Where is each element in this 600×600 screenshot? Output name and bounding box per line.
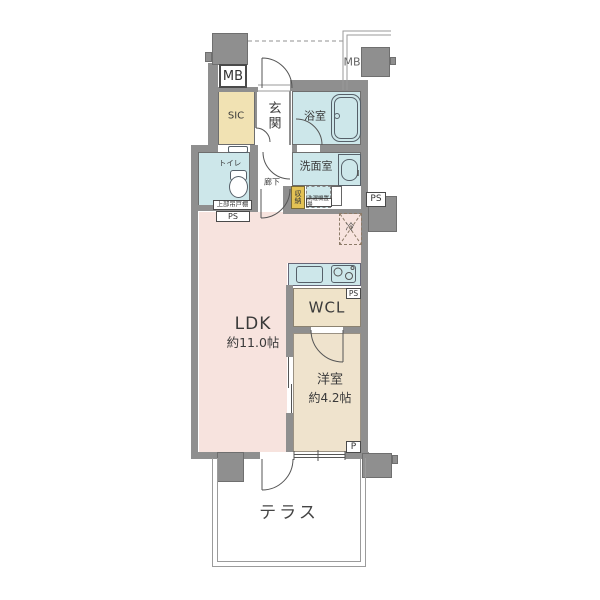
wall-left-lower [191,152,198,459]
entrance-label: 玄関 [265,101,280,131]
floorplan-canvas: MB PS PS PS P 上部吊戸棚 洗濯機置場 [0,0,600,600]
shaft-block-top-left [212,33,248,65]
wall-ldk-bedroom-upper [286,285,293,357]
wall-bath-washroom-l [292,145,297,152]
toilet-tank [228,146,248,153]
p-label: P [351,443,356,452]
wall-wcl-bottom-r [343,327,361,333]
sic-label: SIC [228,110,244,122]
bedroom-size-label: 約4.2帖 [308,392,351,406]
kitchen-stove [331,265,356,283]
bathroom-label: 浴室 [304,111,326,124]
room-ldk-main [199,263,287,452]
washer-label-box: 洗濯機置場 [306,198,332,207]
ps-toilet-label: PS [228,213,238,221]
shaft-block-top-right [361,47,390,77]
ps-kitchen-label: PS [349,290,358,298]
fridge-label: 冷 [345,223,354,233]
shaft-block-bottom-right [362,453,392,478]
shaft-tab-top-right [390,57,396,65]
mb-right-label: MB [343,57,360,70]
bedroom-name-label: 洋室 [317,374,343,389]
wall-wcl-bottom-l [293,327,311,333]
terrace-label: テラス [259,504,319,524]
kitchen-sink [296,266,323,283]
hallway-label: 廊下 [264,177,280,186]
ps-box-right: PS [366,192,386,207]
storage-label: 収納 [294,190,302,204]
wall-ldk-bedroom-lower [286,413,293,452]
wall-left-upper [208,63,218,152]
toilet-bowl [229,176,248,198]
ps-box-toilet: PS [216,211,250,222]
wall-entrance-bath [289,91,291,145]
entrance-door-arc [262,58,292,88]
wall-top-bath [290,80,368,91]
wcl-label: WCL [309,299,346,316]
vanity-sink [341,159,358,181]
upper-cabinet-label: 上部吊戸棚 [217,202,248,208]
upper-cabinet-box: 上部吊戸棚 [213,200,252,210]
shaft-tab-top-left [205,52,212,62]
washer-label: 洗濯機置場 [307,197,331,208]
mb-left-label: MB [223,70,243,83]
entrance-sill-lines [258,85,290,91]
mb-box-left: MB [219,64,247,88]
sliding-partition [289,357,292,413]
ps-box-kitchen: PS [346,288,361,299]
toilet-label: トイレ [219,160,242,169]
shaft-tab-bottom-right [392,455,398,464]
wall-bath-washroom-r [320,145,361,152]
wall-left-step [191,145,218,152]
washroom-label: 洗面室 [300,161,333,174]
wall-right [361,80,368,459]
bathtub-inner [334,97,358,139]
ldk-size-label: 約11.0帖 [227,336,280,350]
wall-sic-entrance [255,91,257,128]
ps-right-label: PS [370,195,381,204]
washroom-door-arc [263,152,290,179]
p-box: P [346,441,361,453]
small-cabinet [331,186,342,206]
ldk-name-label: LDK [235,315,272,335]
